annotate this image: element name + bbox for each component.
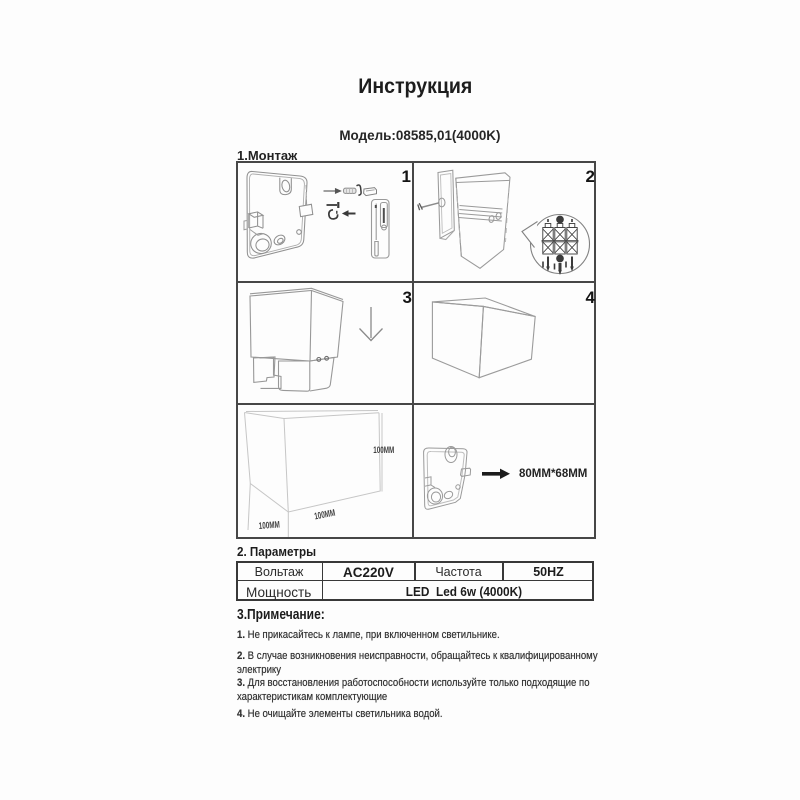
svg-text:100MM: 100MM: [313, 508, 336, 523]
svg-text:100MM: 100MM: [373, 445, 394, 456]
svg-text:100MM: 100MM: [258, 520, 280, 532]
